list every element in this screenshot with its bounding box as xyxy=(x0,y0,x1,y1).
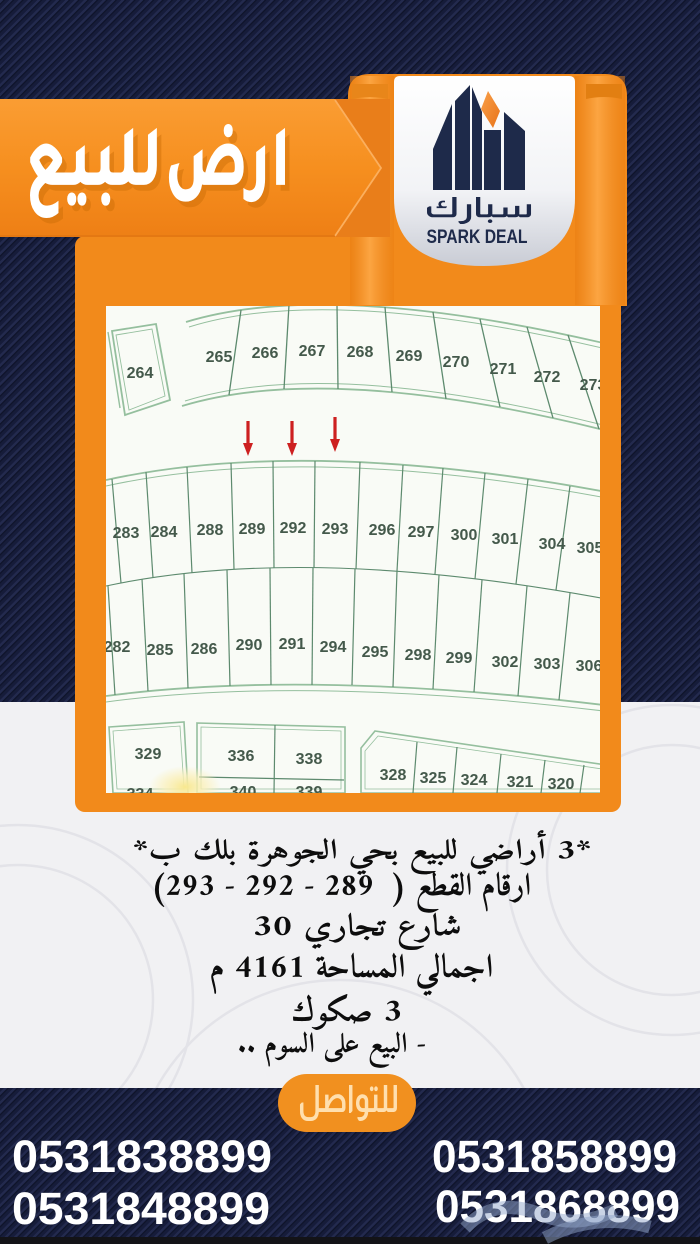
svg-text:305: 305 xyxy=(577,540,604,557)
svg-text:282: 282 xyxy=(104,639,131,656)
svg-text:325: 325 xyxy=(420,770,447,787)
svg-text:324: 324 xyxy=(461,772,488,789)
svg-text:320: 320 xyxy=(548,776,575,793)
svg-text:297: 297 xyxy=(408,524,435,541)
svg-text:293: 293 xyxy=(322,521,349,538)
svg-text:299: 299 xyxy=(446,650,473,667)
svg-text:264: 264 xyxy=(127,365,154,382)
svg-text:328: 328 xyxy=(380,767,407,784)
svg-text:265: 265 xyxy=(206,349,233,366)
svg-text:SPARK DEAL: SPARK DEAL xyxy=(427,227,528,248)
svg-text:296: 296 xyxy=(369,522,396,539)
svg-text:292: 292 xyxy=(280,520,307,537)
svg-text:0531858899: 0531858899 xyxy=(432,1131,677,1182)
svg-text:266: 266 xyxy=(252,345,279,362)
svg-text:294: 294 xyxy=(320,639,347,656)
svg-text:304: 304 xyxy=(539,536,566,553)
svg-text:267: 267 xyxy=(299,343,326,360)
svg-text:336: 336 xyxy=(228,748,255,765)
svg-text:303: 303 xyxy=(534,656,561,673)
svg-text:0531838899: 0531838899 xyxy=(12,1131,272,1182)
svg-text:290: 290 xyxy=(236,637,263,654)
svg-text:272: 272 xyxy=(534,369,561,386)
svg-text:283: 283 xyxy=(113,525,140,542)
svg-text:338: 338 xyxy=(296,751,323,768)
svg-text:289: 289 xyxy=(239,521,266,538)
svg-text:270: 270 xyxy=(443,354,470,371)
svg-text:284: 284 xyxy=(151,524,178,541)
svg-text:321: 321 xyxy=(507,774,534,791)
svg-text:268: 268 xyxy=(347,344,374,361)
svg-text:306: 306 xyxy=(576,658,603,675)
svg-text:295: 295 xyxy=(362,644,389,661)
svg-text:269: 269 xyxy=(396,348,423,365)
svg-text:302: 302 xyxy=(492,654,519,671)
svg-text:329: 329 xyxy=(135,746,162,763)
svg-text:0531848899: 0531848899 xyxy=(12,1183,270,1234)
svg-text:301: 301 xyxy=(492,531,519,548)
svg-text:285: 285 xyxy=(147,642,174,659)
svg-text:288: 288 xyxy=(197,522,224,539)
svg-text:300: 300 xyxy=(451,527,478,544)
svg-text:298: 298 xyxy=(405,647,432,664)
svg-text:291: 291 xyxy=(279,636,306,653)
svg-text:286: 286 xyxy=(191,641,218,658)
svg-text:271: 271 xyxy=(490,361,517,378)
